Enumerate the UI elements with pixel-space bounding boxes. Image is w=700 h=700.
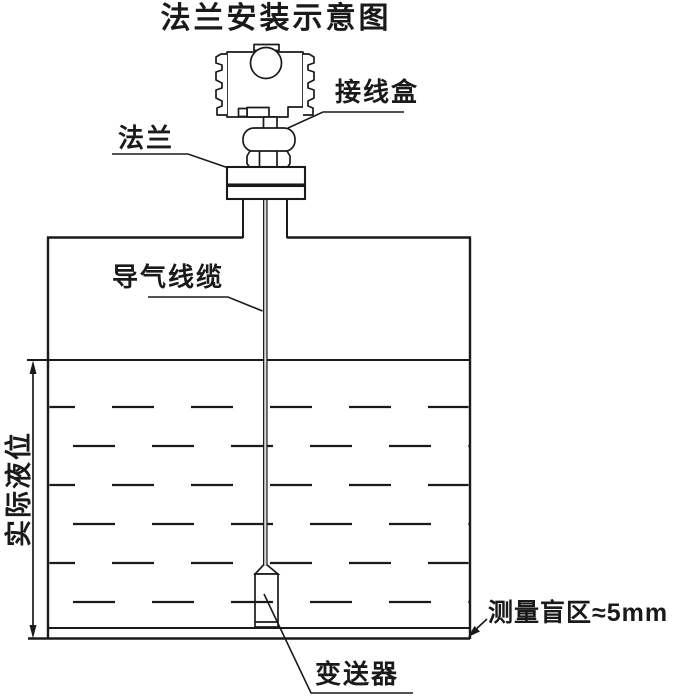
hex-nut: [247, 151, 290, 168]
display-cap: [251, 48, 282, 79]
housing-fins-left: [216, 54, 227, 115]
label-junction-box: 接线盒: [335, 78, 419, 107]
leader-air-cable: [148, 297, 263, 311]
conduit-end-cap: [239, 109, 248, 117]
tank-outline: [28, 237, 471, 639]
connection-stem: [264, 117, 278, 129]
liquid-dashes: [33, 407, 469, 602]
label-blind-zone: 测量盲区≈5mm: [488, 600, 668, 628]
flange-installation-diagram: 法兰安装示意图 接线盒 法兰 导气线缆 实际液位 测量盲区≈5mm 变送器: [0, 0, 700, 700]
flange-plate-lower: [227, 186, 305, 199]
label-transmitter: 变送器: [315, 660, 399, 689]
flange-plate-upper: [227, 167, 305, 185]
label-actual-level: 实际液位: [5, 404, 37, 574]
process-connection: [243, 128, 295, 152]
label-flange: 法兰: [118, 124, 174, 153]
conduit-entry: [247, 108, 269, 118]
liquid: [27, 360, 470, 602]
arrow-down-icon: [30, 625, 37, 639]
guide-cable: [264, 186, 267, 566]
housing-fins-right: [303, 54, 314, 115]
leader-flange: [112, 154, 227, 168]
label-air-guide-cable: 导气线缆: [112, 263, 224, 292]
transmitter-head: [216, 45, 314, 169]
arrow-up-icon: [30, 361, 37, 375]
flange-plates: [227, 167, 305, 199]
probe-taper: [255, 565, 278, 574]
diagram-title: 法兰安装示意图: [136, 2, 416, 35]
